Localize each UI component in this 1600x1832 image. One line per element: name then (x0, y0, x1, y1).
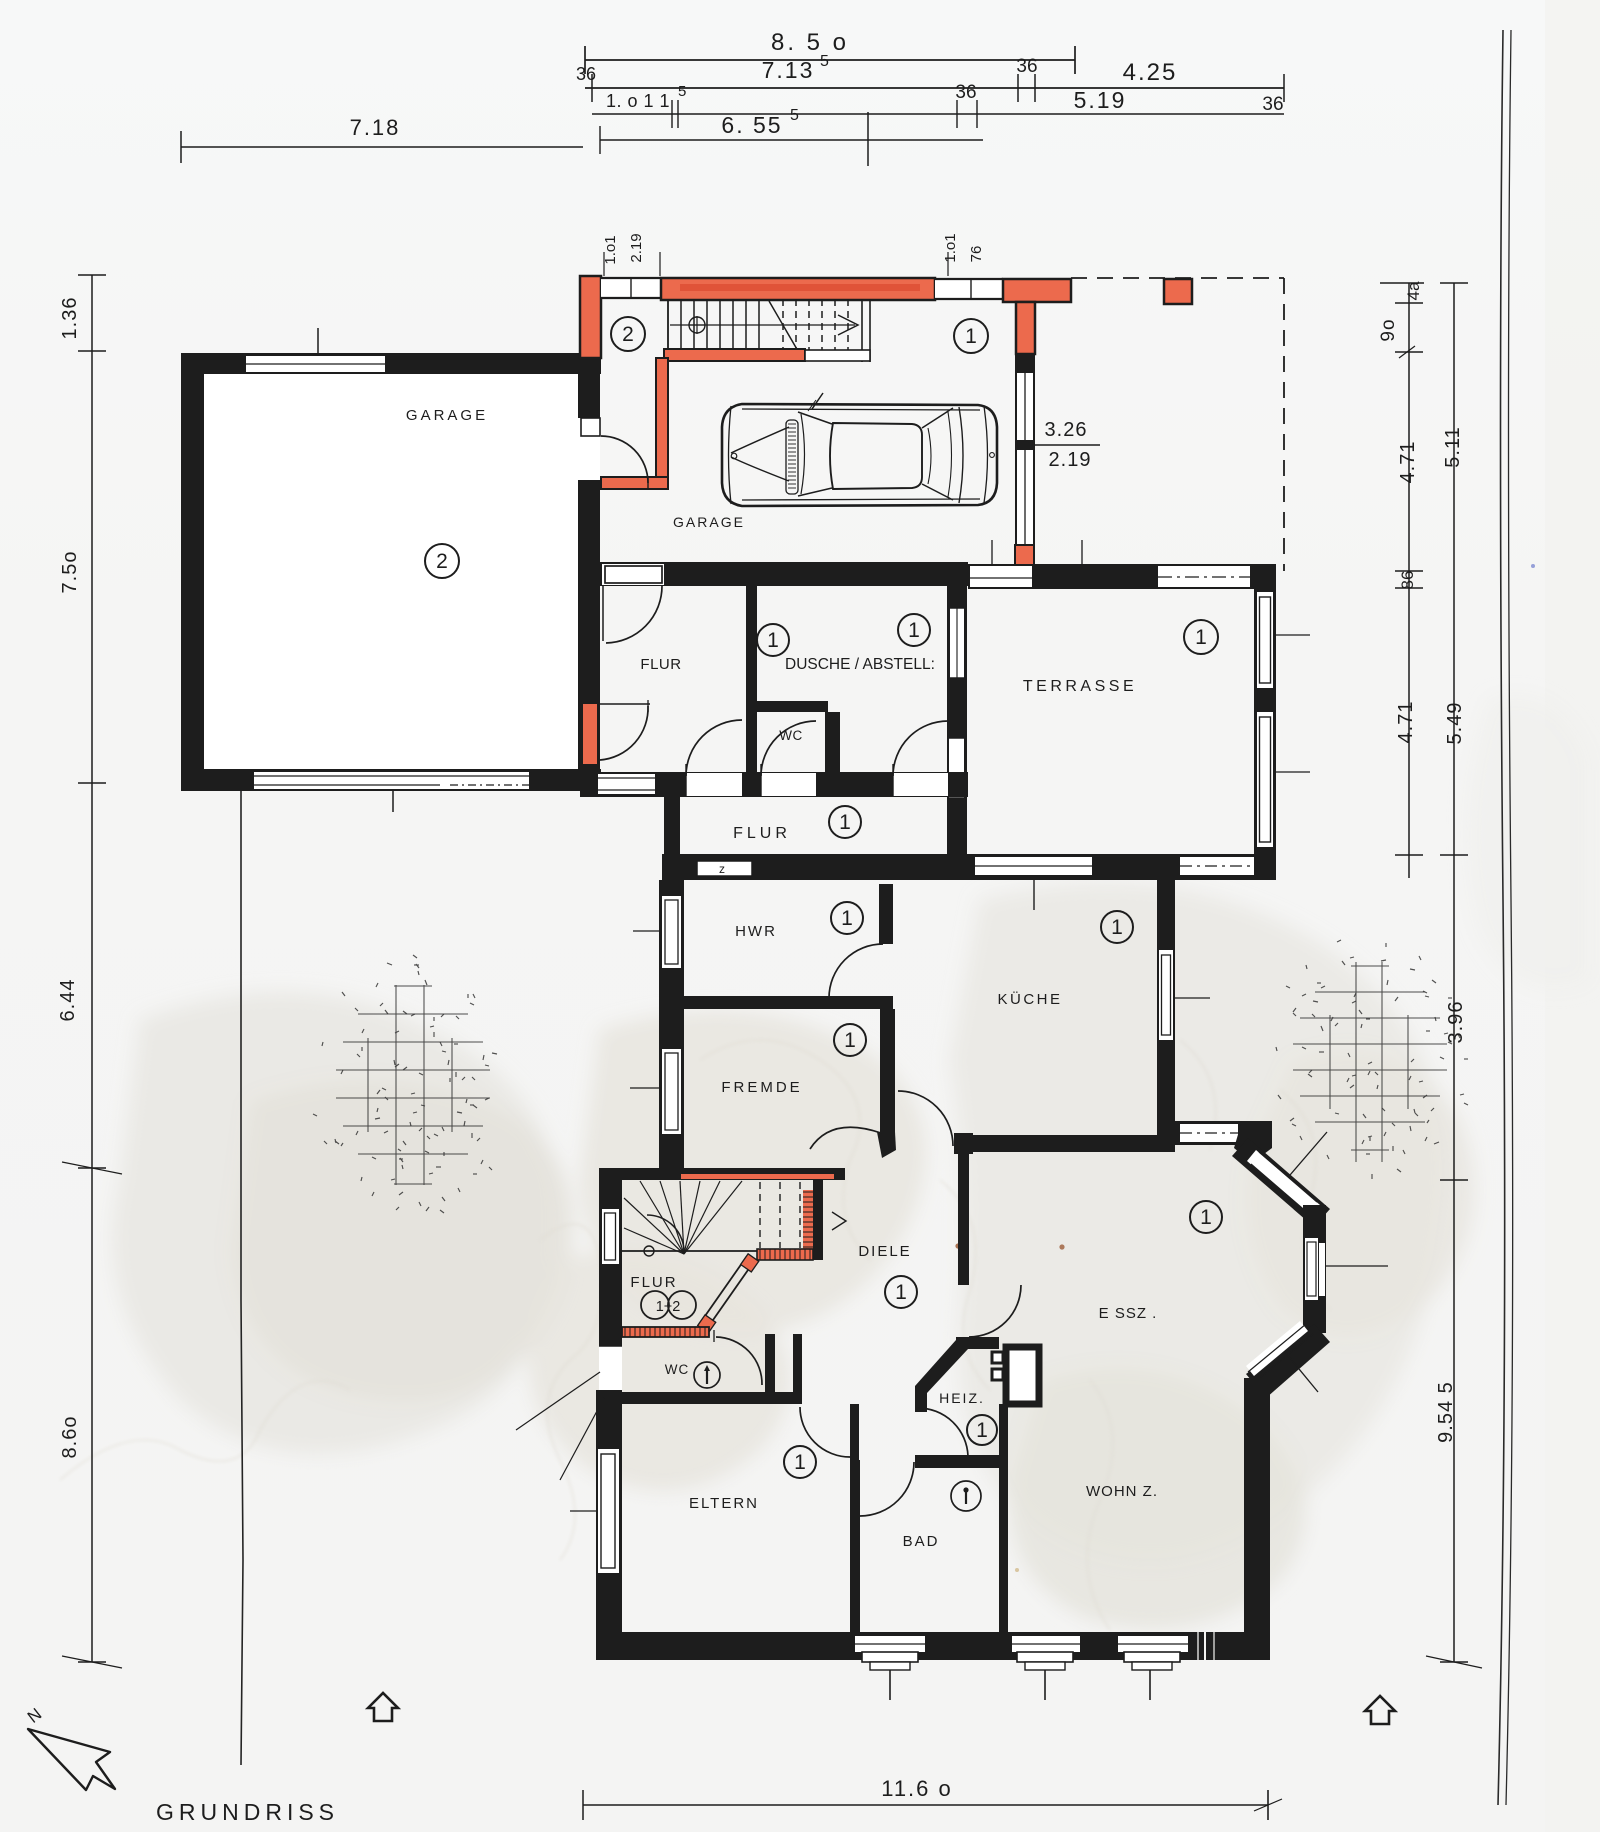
svg-text:HEIZ.: HEIZ. (939, 1390, 985, 1406)
svg-text:4.25: 4.25 (1123, 59, 1178, 86)
svg-text:9.54 5: 9.54 5 (1435, 1381, 1457, 1443)
svg-text:FLUR: FLUR (640, 656, 681, 673)
svg-text:1.o1: 1.o1 (942, 233, 959, 262)
svg-text:WC: WC (779, 728, 803, 743)
svg-text:1.o1: 1.o1 (602, 235, 619, 264)
svg-text:BAD: BAD (903, 1533, 940, 1550)
svg-text:1: 1 (1195, 626, 1207, 649)
svg-text:6. 55: 6. 55 (721, 112, 782, 138)
svg-text:1.36: 1.36 (59, 297, 81, 340)
svg-text:HWR: HWR (735, 923, 777, 940)
svg-text:7.13: 7.13 (762, 57, 815, 83)
svg-text:4a: 4a (1404, 281, 1423, 300)
svg-text:8. 5 o: 8. 5 o (771, 29, 849, 56)
svg-text:1. o 1 1: 1. o 1 1 (606, 91, 670, 111)
svg-text:DUSCHE / ABSTELL:: DUSCHE / ABSTELL: (785, 656, 935, 673)
svg-text:5.19: 5.19 (1074, 87, 1127, 113)
svg-text:86: 86 (1398, 571, 1417, 590)
svg-text:36: 36 (576, 64, 596, 84)
svg-text:5: 5 (678, 83, 686, 100)
svg-text:2.19: 2.19 (1049, 449, 1092, 471)
svg-text:WOHN Z.: WOHN Z. (1086, 1483, 1158, 1500)
svg-text:KÜCHE: KÜCHE (997, 990, 1062, 1008)
svg-text:ELTERN: ELTERN (689, 1495, 759, 1512)
svg-text:1: 1 (841, 907, 853, 930)
svg-text:1: 1 (976, 1419, 988, 1442)
svg-text:FREMDE: FREMDE (721, 1079, 802, 1096)
svg-text:2.19: 2.19 (628, 233, 645, 262)
svg-text:7.18: 7.18 (350, 115, 401, 140)
svg-text:3.26: 3.26 (1045, 419, 1088, 441)
svg-text:GRUNDRISS: GRUNDRISS (156, 1799, 339, 1825)
svg-text:4.71: 4.71 (1395, 701, 1417, 744)
svg-text:11.6 o: 11.6 o (881, 1776, 953, 1801)
svg-text:WC: WC (665, 1362, 690, 1377)
svg-text:1: 1 (895, 1281, 907, 1304)
svg-text:1: 1 (794, 1451, 806, 1474)
svg-text:TERRASSE: TERRASSE (1023, 678, 1137, 695)
svg-text:1: 1 (1111, 916, 1123, 939)
svg-text:GARAGE: GARAGE (406, 407, 488, 424)
svg-text:1: 1 (844, 1029, 856, 1052)
svg-text:2: 2 (622, 323, 634, 346)
svg-text:7.5o: 7.5o (59, 551, 81, 594)
svg-text:8.6o: 8.6o (59, 1416, 81, 1459)
svg-text:1: 1 (965, 325, 977, 348)
svg-text:5.49: 5.49 (1444, 702, 1466, 745)
svg-text:z: z (719, 862, 725, 876)
svg-text:6.44: 6.44 (57, 979, 79, 1022)
svg-text:5: 5 (820, 53, 829, 70)
svg-text:3.96: 3.96 (1445, 1001, 1467, 1044)
svg-text:5: 5 (790, 107, 799, 124)
svg-text:36: 36 (955, 82, 976, 103)
svg-text:2: 2 (436, 550, 448, 573)
svg-text:1: 1 (1200, 1206, 1212, 1229)
svg-text:DIELE: DIELE (858, 1243, 911, 1260)
svg-text:1: 1 (908, 619, 920, 642)
svg-text:1: 1 (839, 811, 851, 834)
svg-text:36: 36 (1016, 56, 1037, 77)
svg-text:E SSZ .: E SSZ . (1099, 1305, 1158, 1322)
svg-text:GARAGE: GARAGE (673, 514, 745, 530)
svg-text:FLUR: FLUR (733, 825, 791, 842)
svg-text:FLUR: FLUR (630, 1274, 677, 1291)
svg-text:5.11: 5.11 (1442, 426, 1464, 467)
svg-text:4.71: 4.71 (1397, 441, 1419, 484)
svg-text:36: 36 (1262, 94, 1283, 115)
svg-text:1: 1 (767, 629, 779, 652)
svg-text:1+2: 1+2 (656, 1299, 681, 1315)
svg-text:9o: 9o (1378, 318, 1399, 341)
svg-text:76: 76 (968, 246, 985, 263)
